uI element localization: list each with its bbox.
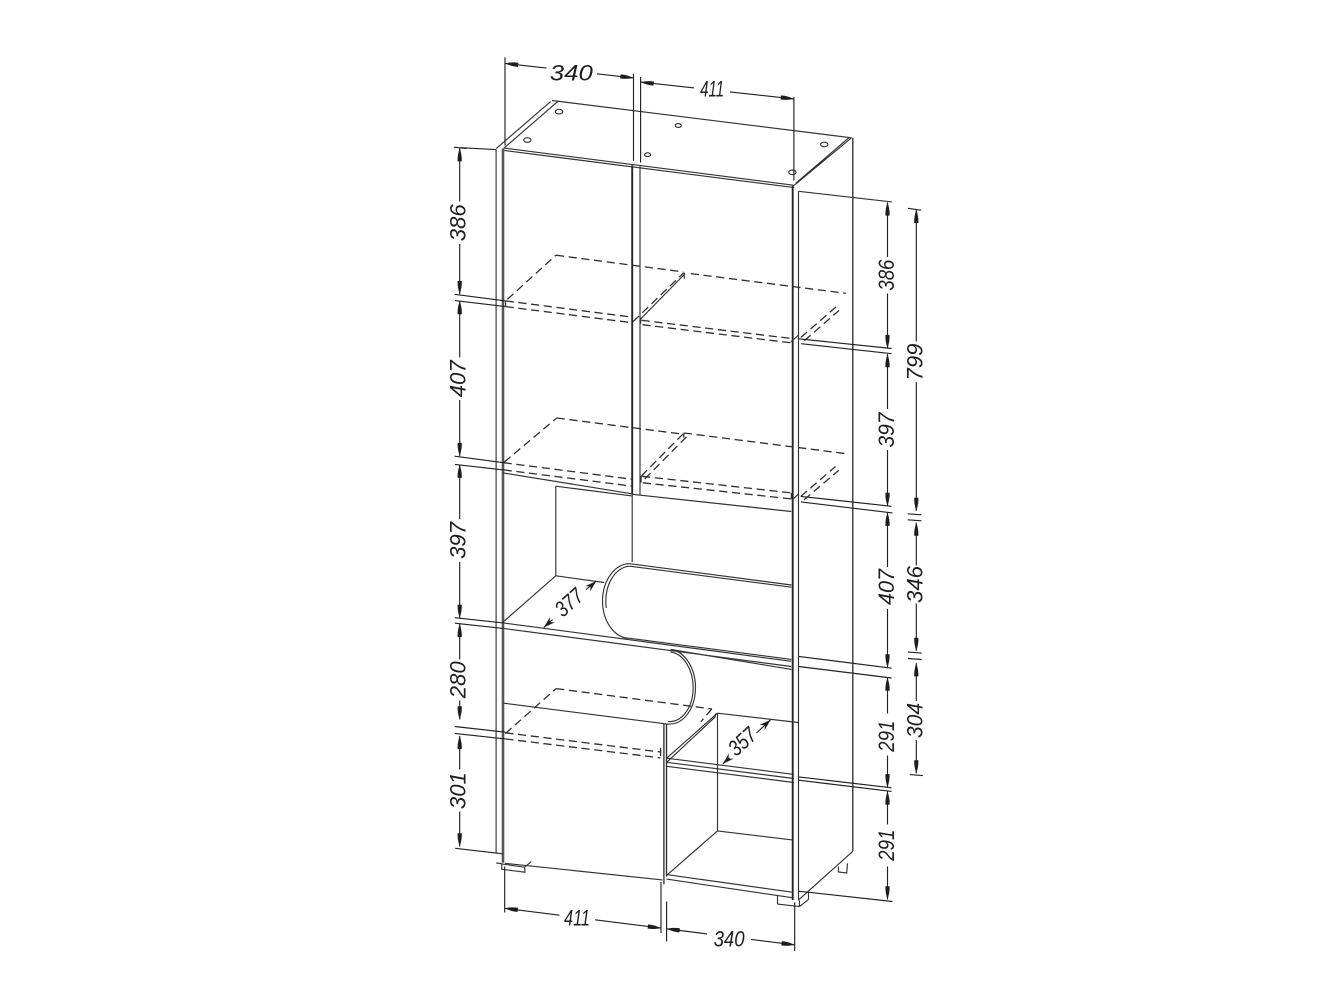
svg-text:340: 340 xyxy=(550,61,594,86)
svg-text:386: 386 xyxy=(874,259,899,291)
svg-text:280: 280 xyxy=(446,661,471,700)
svg-text:407: 407 xyxy=(446,360,471,398)
svg-text:411: 411 xyxy=(700,77,724,102)
svg-text:301: 301 xyxy=(446,772,471,809)
svg-text:397: 397 xyxy=(874,412,899,448)
svg-text:291: 291 xyxy=(874,721,899,753)
svg-text:291: 291 xyxy=(874,830,899,862)
svg-text:411: 411 xyxy=(564,905,590,930)
svg-text:397: 397 xyxy=(446,521,471,559)
svg-text:386: 386 xyxy=(446,204,471,242)
svg-text:407: 407 xyxy=(874,568,899,605)
svg-text:340: 340 xyxy=(714,926,746,951)
svg-text:346: 346 xyxy=(903,565,928,603)
svg-text:799: 799 xyxy=(903,344,928,381)
svg-text:304: 304 xyxy=(903,703,928,738)
